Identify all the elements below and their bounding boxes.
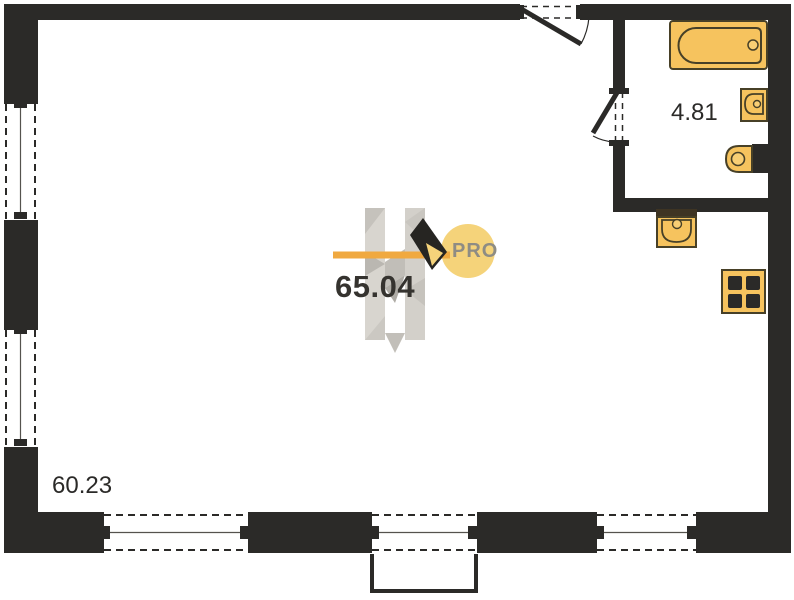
entrance-door-swing-arc [581, 17, 589, 44]
window-left-2 [6, 327, 35, 447]
window-bottom-2 [369, 515, 478, 550]
bathroom-wall-left-upper [613, 20, 625, 88]
wall-right [768, 4, 791, 553]
window-bottom-1 [100, 515, 250, 550]
main-room-area-label: 65.04 [335, 271, 415, 302]
wall-bottom-3 [477, 512, 597, 553]
secondary-area-label: 60.23 [52, 474, 112, 498]
washbasin-icon [741, 89, 767, 121]
wall-left-middle [4, 220, 38, 330]
wall-bottom-4 [696, 512, 791, 553]
watermark-pro-label: PRO [452, 241, 498, 261]
kitchen-sink-icon [656, 209, 697, 247]
wall-bottom-1 [4, 512, 104, 553]
stove-icon [722, 270, 765, 313]
bathroom-area-label: 4.81 [671, 101, 718, 125]
bathroom-door-leaf [593, 91, 618, 133]
wall-top-left [4, 4, 520, 20]
floor-plan: 65.04 4.81 60.23 PRO [0, 0, 794, 600]
bathroom-door [593, 91, 623, 142]
entrance-door-leaf [523, 10, 581, 44]
wall-top-right [580, 4, 791, 20]
wall-bottom-2 [248, 512, 372, 553]
bathroom-wall-left-lower [613, 146, 625, 198]
window-left-1 [6, 101, 35, 220]
toilet-icon [726, 144, 768, 173]
balcony [372, 554, 476, 591]
window-bottom-3 [594, 515, 697, 550]
entrance-door [517, 5, 589, 44]
bathtub-icon [670, 21, 767, 69]
